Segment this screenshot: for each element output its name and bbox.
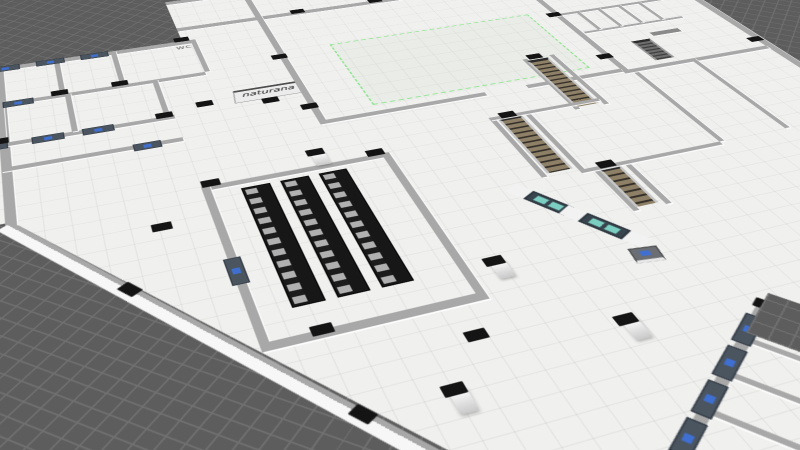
kiosk-screen [639, 250, 652, 256]
world-plane: naturana WC [0, 0, 800, 450]
viewport-canvas[interactable]: naturana WC [0, 0, 800, 450]
